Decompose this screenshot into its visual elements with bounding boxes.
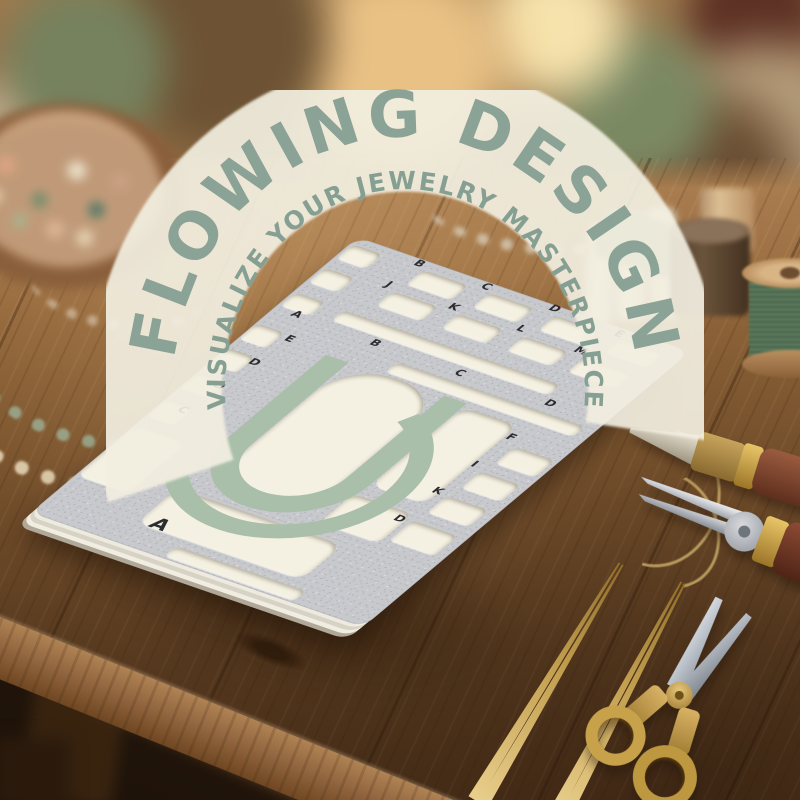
board-section-label: A <box>287 309 306 320</box>
board-section-label: K <box>428 485 447 496</box>
board-section-label: C <box>477 281 495 292</box>
spool-flange <box>670 218 750 244</box>
board-section-label: B <box>410 258 429 269</box>
board-section-label: E <box>610 329 628 340</box>
board-section-label: C <box>451 368 469 379</box>
board-section-label: A <box>143 515 176 535</box>
board-section-label: L <box>512 323 529 334</box>
board-section-label: E <box>281 334 299 345</box>
board-section-label: K <box>444 302 463 313</box>
board-section-label: D <box>245 357 264 369</box>
board-section-label: F <box>502 432 520 443</box>
board-section-label: D <box>540 398 559 410</box>
brown-thread-spool <box>670 226 750 316</box>
board-section-label: D <box>545 303 564 315</box>
board-section-label: M <box>570 345 591 357</box>
table-leg <box>0 738 70 800</box>
jewelry-board-scene: BCDEJKLMABCDEDDCFIKDA <box>0 0 800 800</box>
board-section-label: B <box>366 338 385 349</box>
board-section-label: D <box>390 513 409 525</box>
board-section-label: I <box>467 459 481 469</box>
board-section-label: J <box>381 280 395 290</box>
green-thread-spool <box>742 258 800 376</box>
board-section-label: D <box>209 380 228 392</box>
board-section-label: C <box>174 405 192 416</box>
